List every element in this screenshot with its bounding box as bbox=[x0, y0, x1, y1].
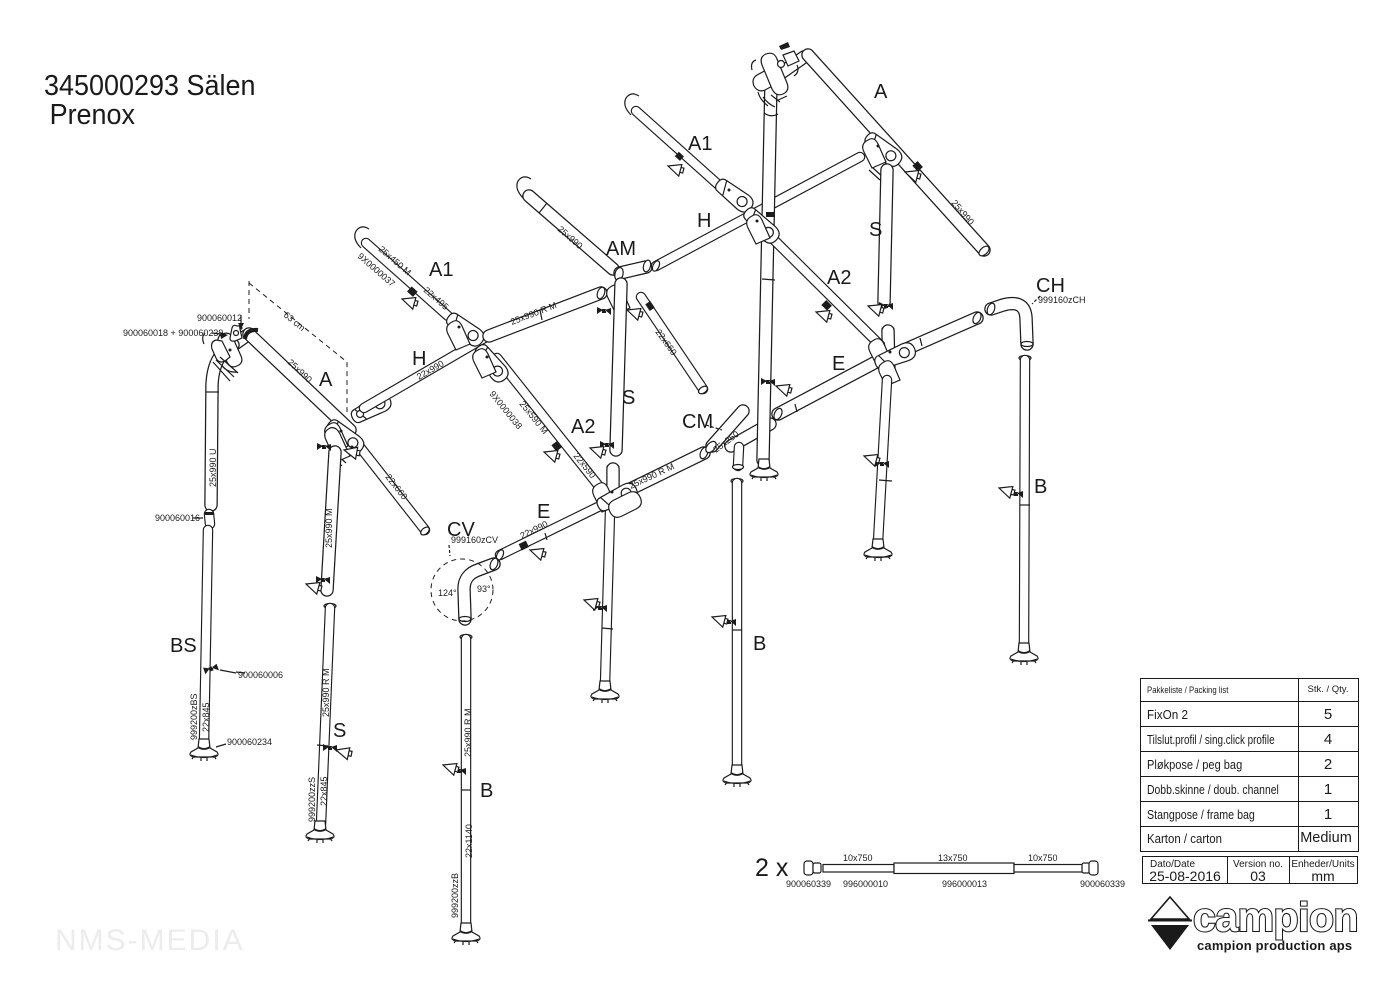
svg-text:999160zCV: 999160zCV bbox=[451, 535, 498, 545]
svg-text:NMS-MEDIA: NMS-MEDIA bbox=[55, 924, 245, 957]
svg-text:B: B bbox=[480, 780, 493, 802]
svg-text:22x845: 22x845 bbox=[201, 702, 211, 732]
svg-text:E: E bbox=[832, 353, 845, 375]
svg-text:B: B bbox=[1034, 476, 1047, 498]
svg-text:BS: BS bbox=[170, 635, 197, 657]
svg-text:124°: 124° bbox=[438, 588, 457, 598]
svg-text:A: A bbox=[319, 369, 333, 391]
svg-text:25x990 R M: 25x990 R M bbox=[321, 668, 331, 717]
svg-text:63 cm: 63 cm bbox=[282, 310, 307, 333]
svg-text:A2: A2 bbox=[571, 416, 595, 438]
svg-text:campion: campion bbox=[1193, 894, 1358, 940]
svg-text:10x750: 10x750 bbox=[843, 853, 873, 863]
svg-text:B: B bbox=[753, 633, 766, 655]
svg-text:900060006: 900060006 bbox=[238, 670, 283, 680]
svg-text:900060012: 900060012 bbox=[197, 313, 242, 323]
svg-text:999200zzB: 999200zzB bbox=[450, 873, 460, 918]
svg-text:A: A bbox=[874, 81, 888, 103]
svg-text:13x750: 13x750 bbox=[938, 853, 968, 863]
svg-text:93°: 93° bbox=[477, 584, 491, 594]
svg-text:25x990 M: 25x990 M bbox=[324, 508, 334, 548]
svg-text:9X0000038: 9X0000038 bbox=[487, 389, 524, 431]
svg-text:CM: CM bbox=[682, 411, 713, 433]
svg-text:25x990 U: 25x990 U bbox=[208, 448, 218, 487]
svg-text:10x750: 10x750 bbox=[1028, 853, 1058, 863]
svg-text:999160zCH: 999160zCH bbox=[1038, 295, 1086, 305]
svg-text:2 x: 2 x bbox=[755, 854, 789, 882]
svg-text:S: S bbox=[333, 720, 346, 742]
svg-text:A1: A1 bbox=[688, 133, 712, 155]
svg-text:900060339: 900060339 bbox=[1080, 879, 1125, 889]
svg-text:999200zzS: 999200zzS bbox=[307, 777, 317, 822]
svg-text:900060234: 900060234 bbox=[227, 737, 272, 747]
svg-text:A2: A2 bbox=[827, 267, 851, 289]
svg-text:22x1140: 22x1140 bbox=[464, 824, 474, 858]
svg-text:996000013: 996000013 bbox=[942, 879, 987, 889]
svg-text:999200zBS: 999200zBS bbox=[189, 693, 199, 740]
svg-text:996000010: 996000010 bbox=[843, 879, 888, 889]
svg-text:S: S bbox=[869, 219, 882, 241]
svg-text:25x990 R M: 25x990 R M bbox=[463, 708, 473, 757]
svg-text:campion production aps: campion production aps bbox=[1197, 938, 1352, 953]
svg-text:CH: CH bbox=[1036, 275, 1065, 297]
svg-text:22x845: 22x845 bbox=[319, 776, 329, 806]
svg-text:900060339: 900060339 bbox=[786, 879, 831, 889]
svg-text:AM: AM bbox=[606, 238, 636, 260]
svg-text:A1: A1 bbox=[429, 259, 453, 281]
svg-text:S: S bbox=[622, 387, 635, 409]
svg-text:900060018 + 900060239: 900060018 + 900060239 bbox=[123, 328, 223, 338]
svg-text:H: H bbox=[697, 210, 711, 232]
